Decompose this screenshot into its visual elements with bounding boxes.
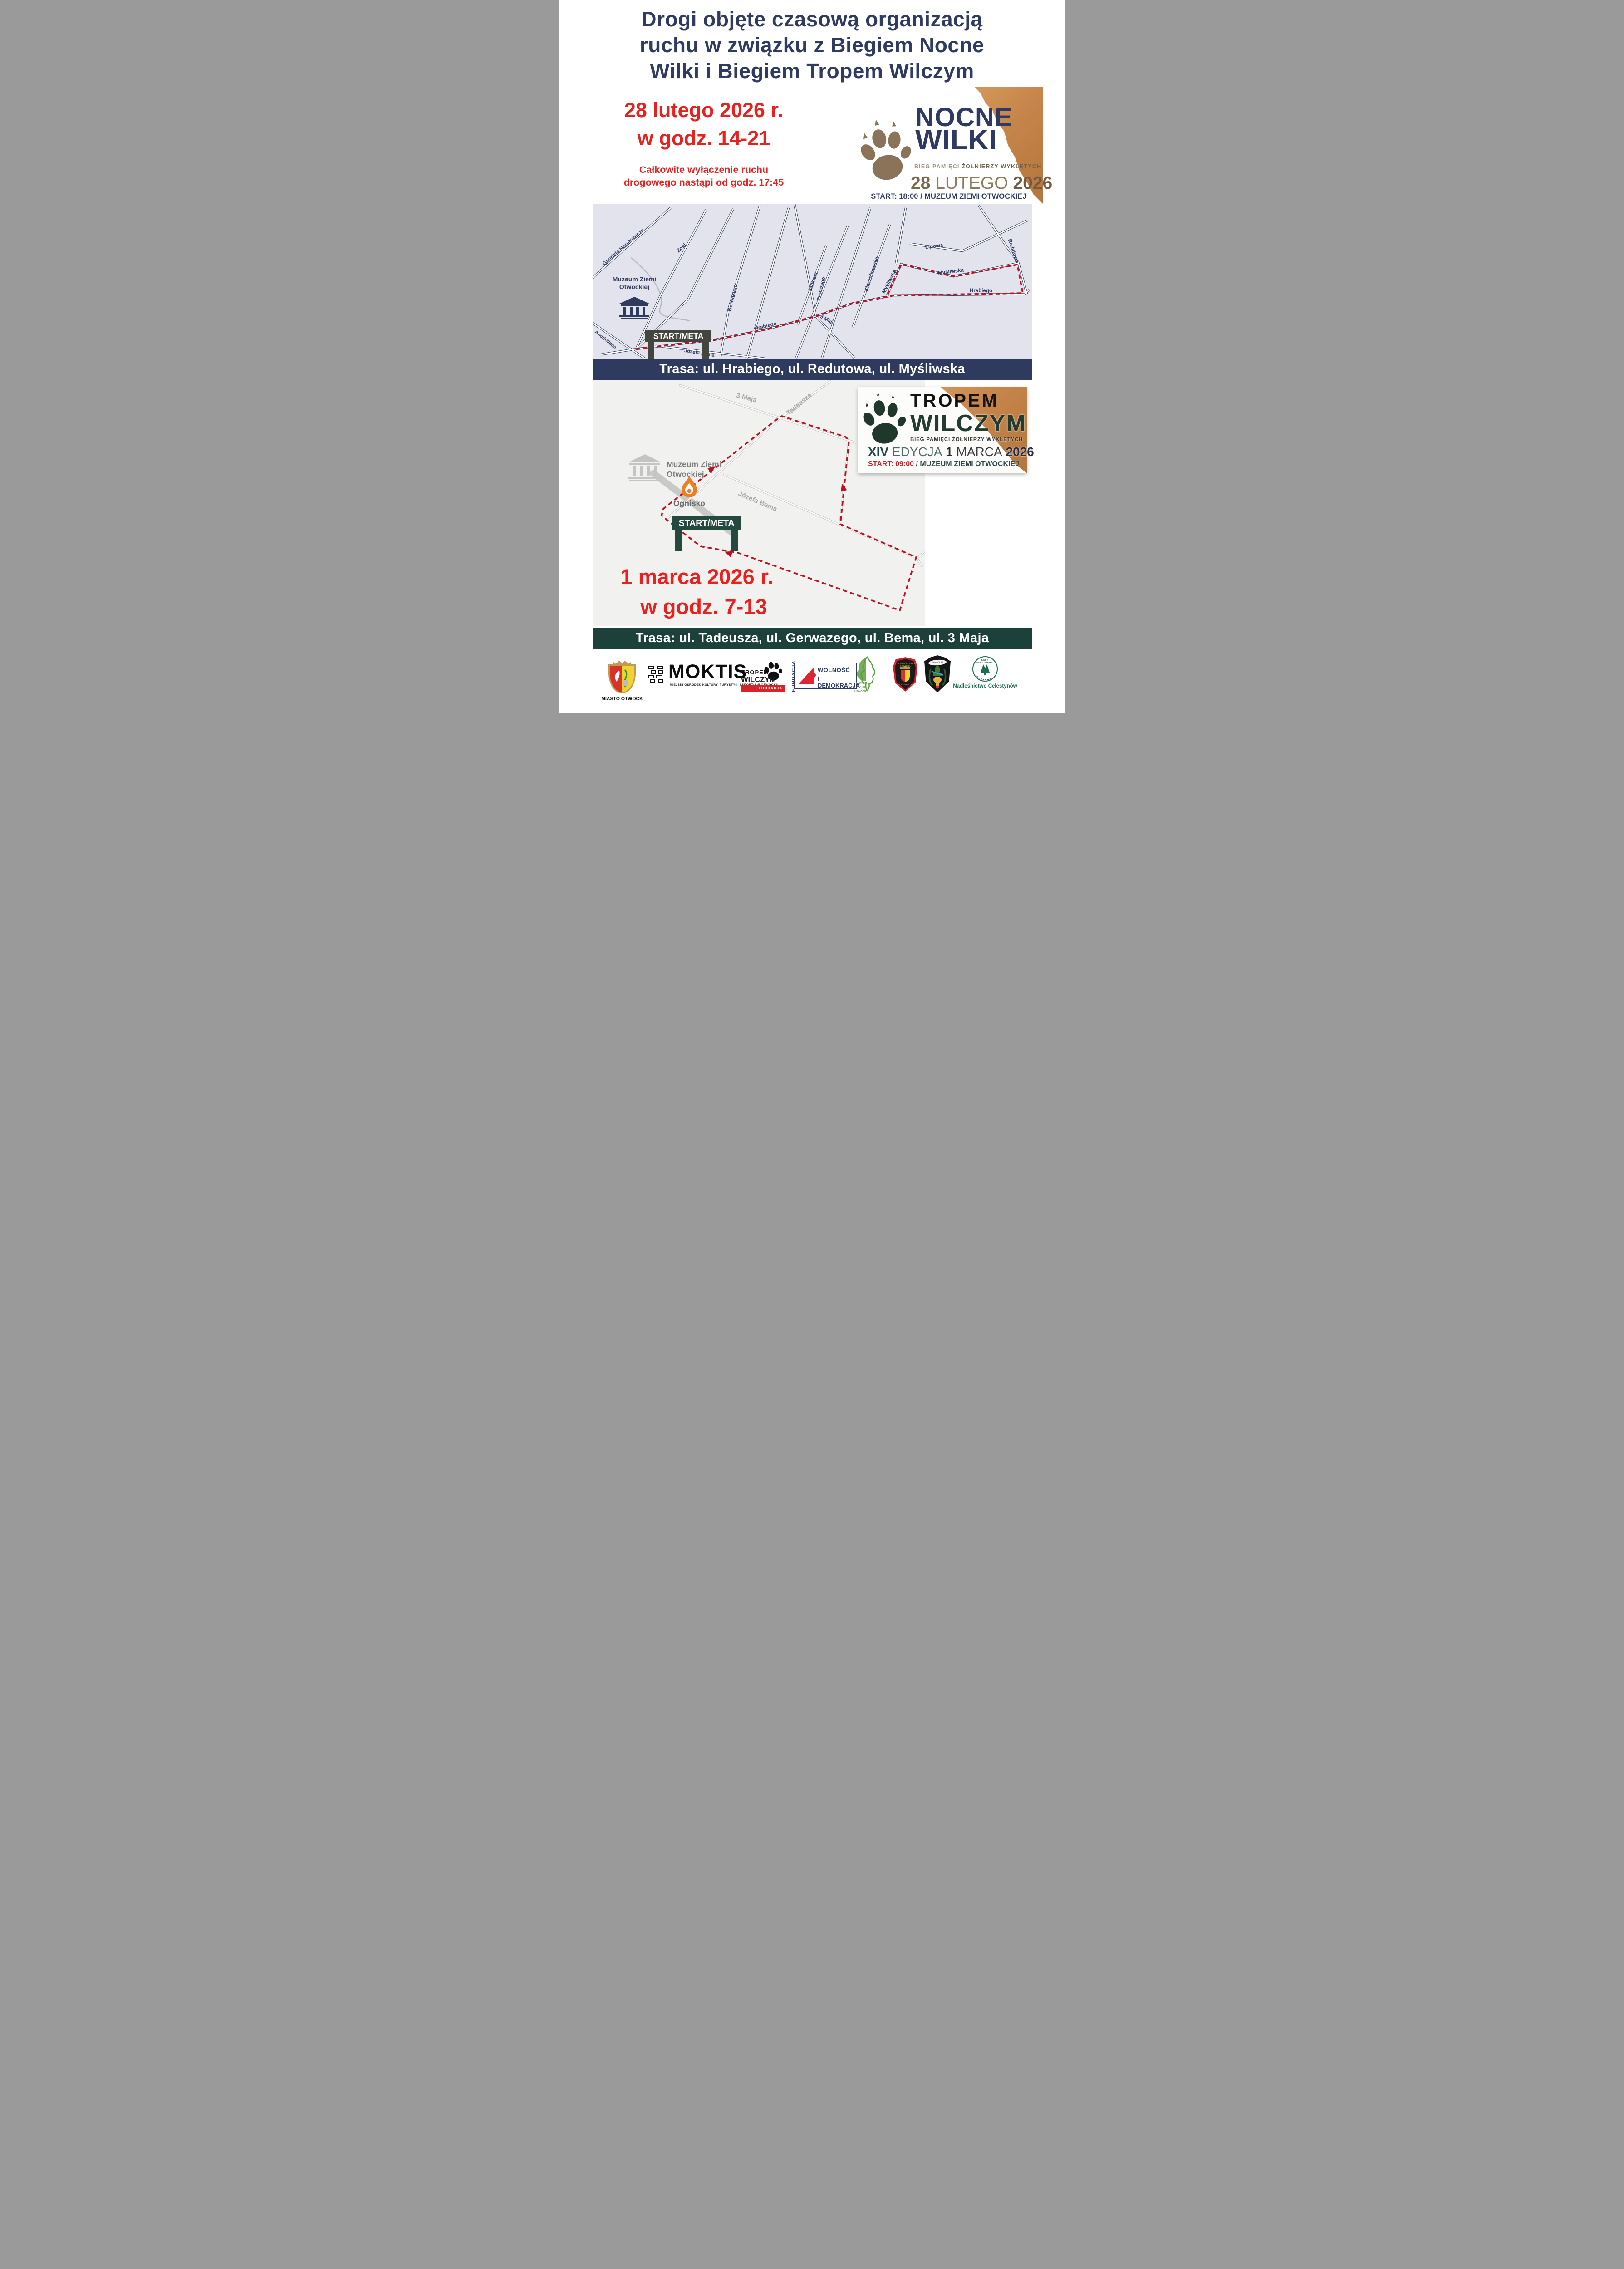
tropem-wilczym-logo-panel: TROPEM WILCZYM BIEG PAMIĘCI ŻOŁNIERZY WY… (858, 387, 1027, 473)
crest-crown (613, 661, 631, 666)
tropem-fundacja-bar: FUNDACJA (741, 685, 785, 692)
event1-date-block: 28 lutego 2026 r. w godz. 14-21 (590, 96, 817, 152)
title-line-3: Wilki i Biegiem Tropem Wilczym (559, 58, 1065, 84)
wolnosc-flag-icon (796, 665, 816, 686)
logo2-edition-line: XIV EDYCJA 1 MARCA 2026 (868, 445, 1034, 459)
title-line-2: ruchu w związku z Biegiem Nocne (559, 32, 1065, 58)
logo1-date-month: LUTEGO (935, 173, 1008, 193)
logo1-start-line: START: 18:00 / MUZEUM ZIEMI OTWOCKIEJ (862, 192, 1036, 201)
map2-museum-label-2: Otwockiej (667, 470, 704, 479)
logo2-name-line2: WILCZYM (910, 410, 1027, 437)
event2-hours: w godz. 7-13 (590, 592, 804, 622)
event1-hours: w godz. 14-21 (590, 124, 817, 152)
tropem-fundacja-line2: WILCZYM (741, 676, 776, 684)
map1-museum-label-2: Otwockiej (619, 283, 649, 290)
footer-logos: MIASTO OTWOCK MOKTIS MIEJSKI OŚRODEK KUL… (559, 649, 1065, 713)
route1-banner: Trasa: ul. Hrabiego, ul. Redutowa, ul. M… (593, 359, 1032, 380)
route2-banner: Trasa: ul. Tadeusza, ul. Gerwazego, ul. … (593, 628, 1032, 649)
road-closure-poster: Drogi objęte czasową organizacją ruchu w… (559, 0, 1065, 713)
map1-gate-label: START/META (653, 332, 704, 341)
moktis-pattern-icon (648, 664, 665, 685)
logo2-edition-month: MARCA (957, 445, 1002, 459)
event2-date-block: 1 marca 2026 r. w godz. 7-13 (590, 562, 804, 622)
map2-museum-label-1: Muzeum Ziemi (667, 460, 721, 469)
logo2-start-time: START: 09:00 (868, 460, 914, 468)
logo1-subtitle: BIEG PAMIĘCI ŻOŁNIERZY WYKLĘTYCH (914, 163, 1041, 170)
logo2-edition-day: 1 (946, 445, 953, 459)
logo1-subtitle-dark: ŻOŁNIERZY WYKLĘTYCH (962, 163, 1041, 170)
lasy-lp-glyph (979, 663, 991, 676)
logo2-start-place: / MUZEUM ZIEMI OTWOCKIEJ (916, 460, 1020, 468)
wolf-paw-icon-brown (860, 119, 912, 187)
miasto-otwock-caption: MIASTO OTWOCK (590, 696, 654, 702)
lasy-panstwowe-emblem: LASY PAŃSTWOWE (972, 656, 998, 682)
map2-gate-label: START/META (679, 518, 735, 528)
zhp-caption-2: ZHP (848, 685, 866, 689)
event1-note-line2: drogowego nastąpi od godz. 17:45 (584, 176, 824, 189)
osp-otwock-jablonna-crest: OCHOTNICZA STRAŻ POŻARNA OTWOCK-JABŁONNA (893, 657, 917, 692)
logo1-date-day: 28 (911, 173, 930, 193)
logo2-start-line: START: 09:00 / MUZEUM ZIEMI OTWOCKIEJ (868, 460, 1019, 468)
map-nocne-wilki: Muzeum Ziemi Otwockiej Gabriela Narutowi… (593, 204, 1032, 359)
event2-date: 1 marca 2026 r. (590, 562, 804, 592)
logo2-edition-roman: XIV (868, 445, 888, 459)
logo2-name-line1: TROPEM (910, 391, 999, 411)
logo1-subtitle-light: BIEG PAMIĘCI (914, 163, 960, 170)
nocne-wilki-logo-name: NOCNE WILKI (915, 106, 1036, 152)
logo2-edition-word: EDYCJA (892, 445, 942, 459)
event1-note: Całkowite wyłączenie ruchu drogowego nas… (584, 163, 824, 189)
crest-eagle (615, 671, 620, 682)
page-title: Drogi objęte czasową organizacją ruchu w… (559, 6, 1065, 84)
crest-emblems (611, 668, 633, 689)
wolnosc-box: WOLNOŚĆ I DEMOKRACJA (794, 663, 857, 689)
moktis-wordmark: MOKTIS (668, 661, 747, 683)
map2-ognisko-label: Ognisko (673, 499, 705, 508)
lasy-caption: Nadleśnictwo Celestynów (944, 683, 1026, 689)
zhp-caption-3: Otwock (848, 689, 866, 693)
osp1-ring-text-bottom: OTWOCK-JABŁONNA (893, 683, 917, 686)
osp1-inner-shield (901, 670, 910, 682)
logo2-edition-year: 2026 (1006, 445, 1034, 459)
map1-museum-label-1: Muzeum Ziemi (613, 275, 656, 283)
logo2-subtitle: BIEG PAMIĘCI ŻOŁNIERZY WYKLĘTYCH (910, 437, 1023, 442)
event1-note-line1: Całkowite wyłączenie ruchu (584, 163, 824, 176)
zhp-caption: Hufiec ZHP Otwock (848, 681, 866, 693)
tropem-fundacja-line1: TROPEM (741, 669, 769, 676)
logo1-date-line: 28 LUTEGO 2026 (911, 173, 1052, 193)
miasto-otwock-crest-icon (608, 661, 636, 693)
crest-column (623, 680, 628, 686)
wolf-paw-icon-green (862, 391, 907, 451)
title-line-1: Drogi objęte czasową organizacją (559, 6, 1065, 32)
logo1-date-year: 2026 (1013, 173, 1052, 193)
event1-date: 28 lutego 2026 r. (590, 96, 817, 124)
street-label-hrabiego-east: Hrabiego (970, 288, 992, 294)
lasy-laurel (976, 675, 996, 682)
tropem-fundacja-logo: TROPEM WILCZYM FUNDACJA (741, 659, 785, 693)
wolnosc-line1: WOLNOŚĆ (818, 667, 850, 673)
zhp-caption-1: Hufiec (848, 681, 866, 685)
logo1-name-line2: WILKI (915, 129, 1036, 152)
